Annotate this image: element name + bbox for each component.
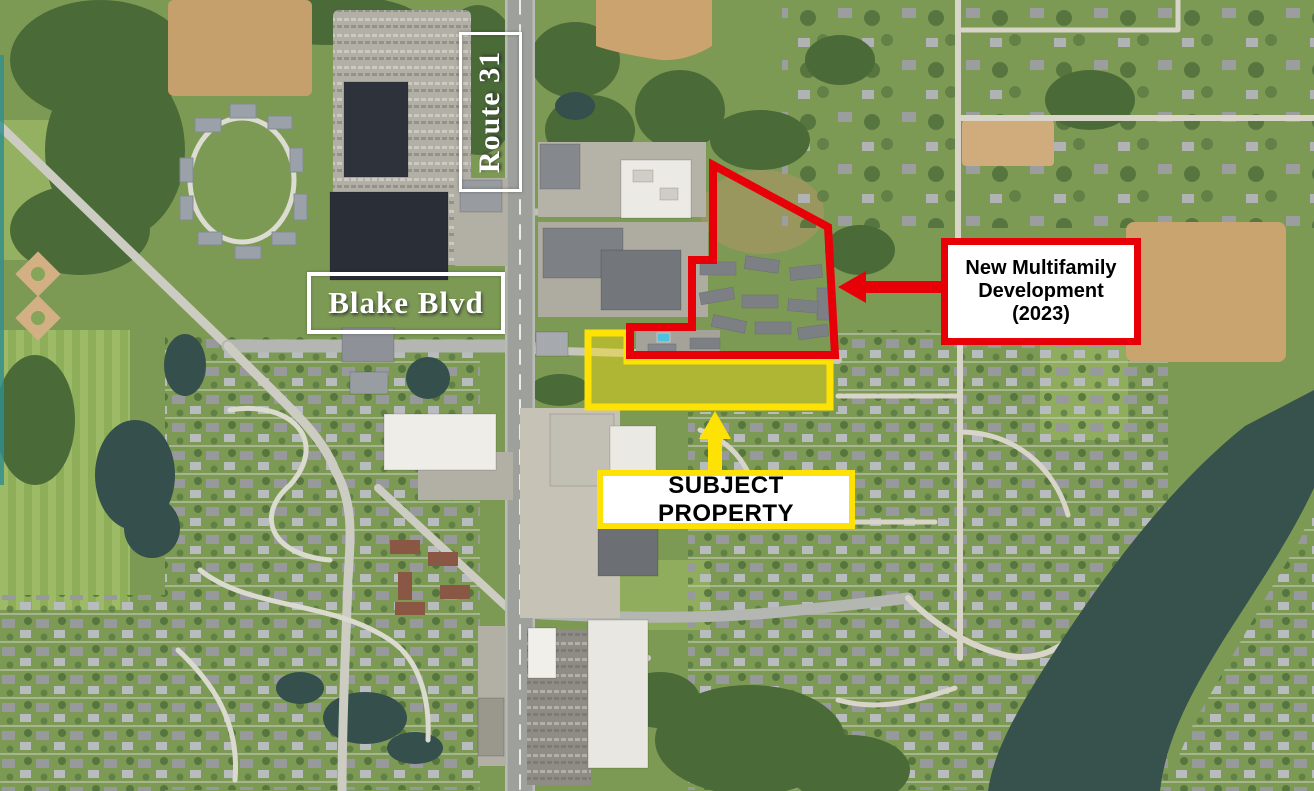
subject-property-callout-text: SUBJECT PROPERTY [603, 472, 849, 528]
south-warehouse-roof [588, 620, 648, 768]
aerial-map: Route 31 Blake Blvd New Multifamily Deve… [0, 0, 1314, 791]
blake-blvd-label: Blake Blvd [307, 272, 505, 334]
route-31-label-text: Route 31 [474, 51, 508, 173]
satellite-imagery [0, 0, 1314, 791]
route-31-label: Route 31 [459, 32, 522, 192]
imagery-edge-artifact [0, 55, 4, 485]
blake-blvd-label-text: Blake Blvd [328, 285, 484, 321]
development-callout-text: New Multifamily Development (2023) [965, 257, 1116, 327]
white-big-box-roof [384, 414, 496, 470]
pool [657, 333, 670, 342]
development-callout: New Multifamily Development (2023) [941, 238, 1141, 345]
subject-property-callout: SUBJECT PROPERTY [597, 470, 855, 529]
big-box-store-roof [344, 82, 408, 177]
